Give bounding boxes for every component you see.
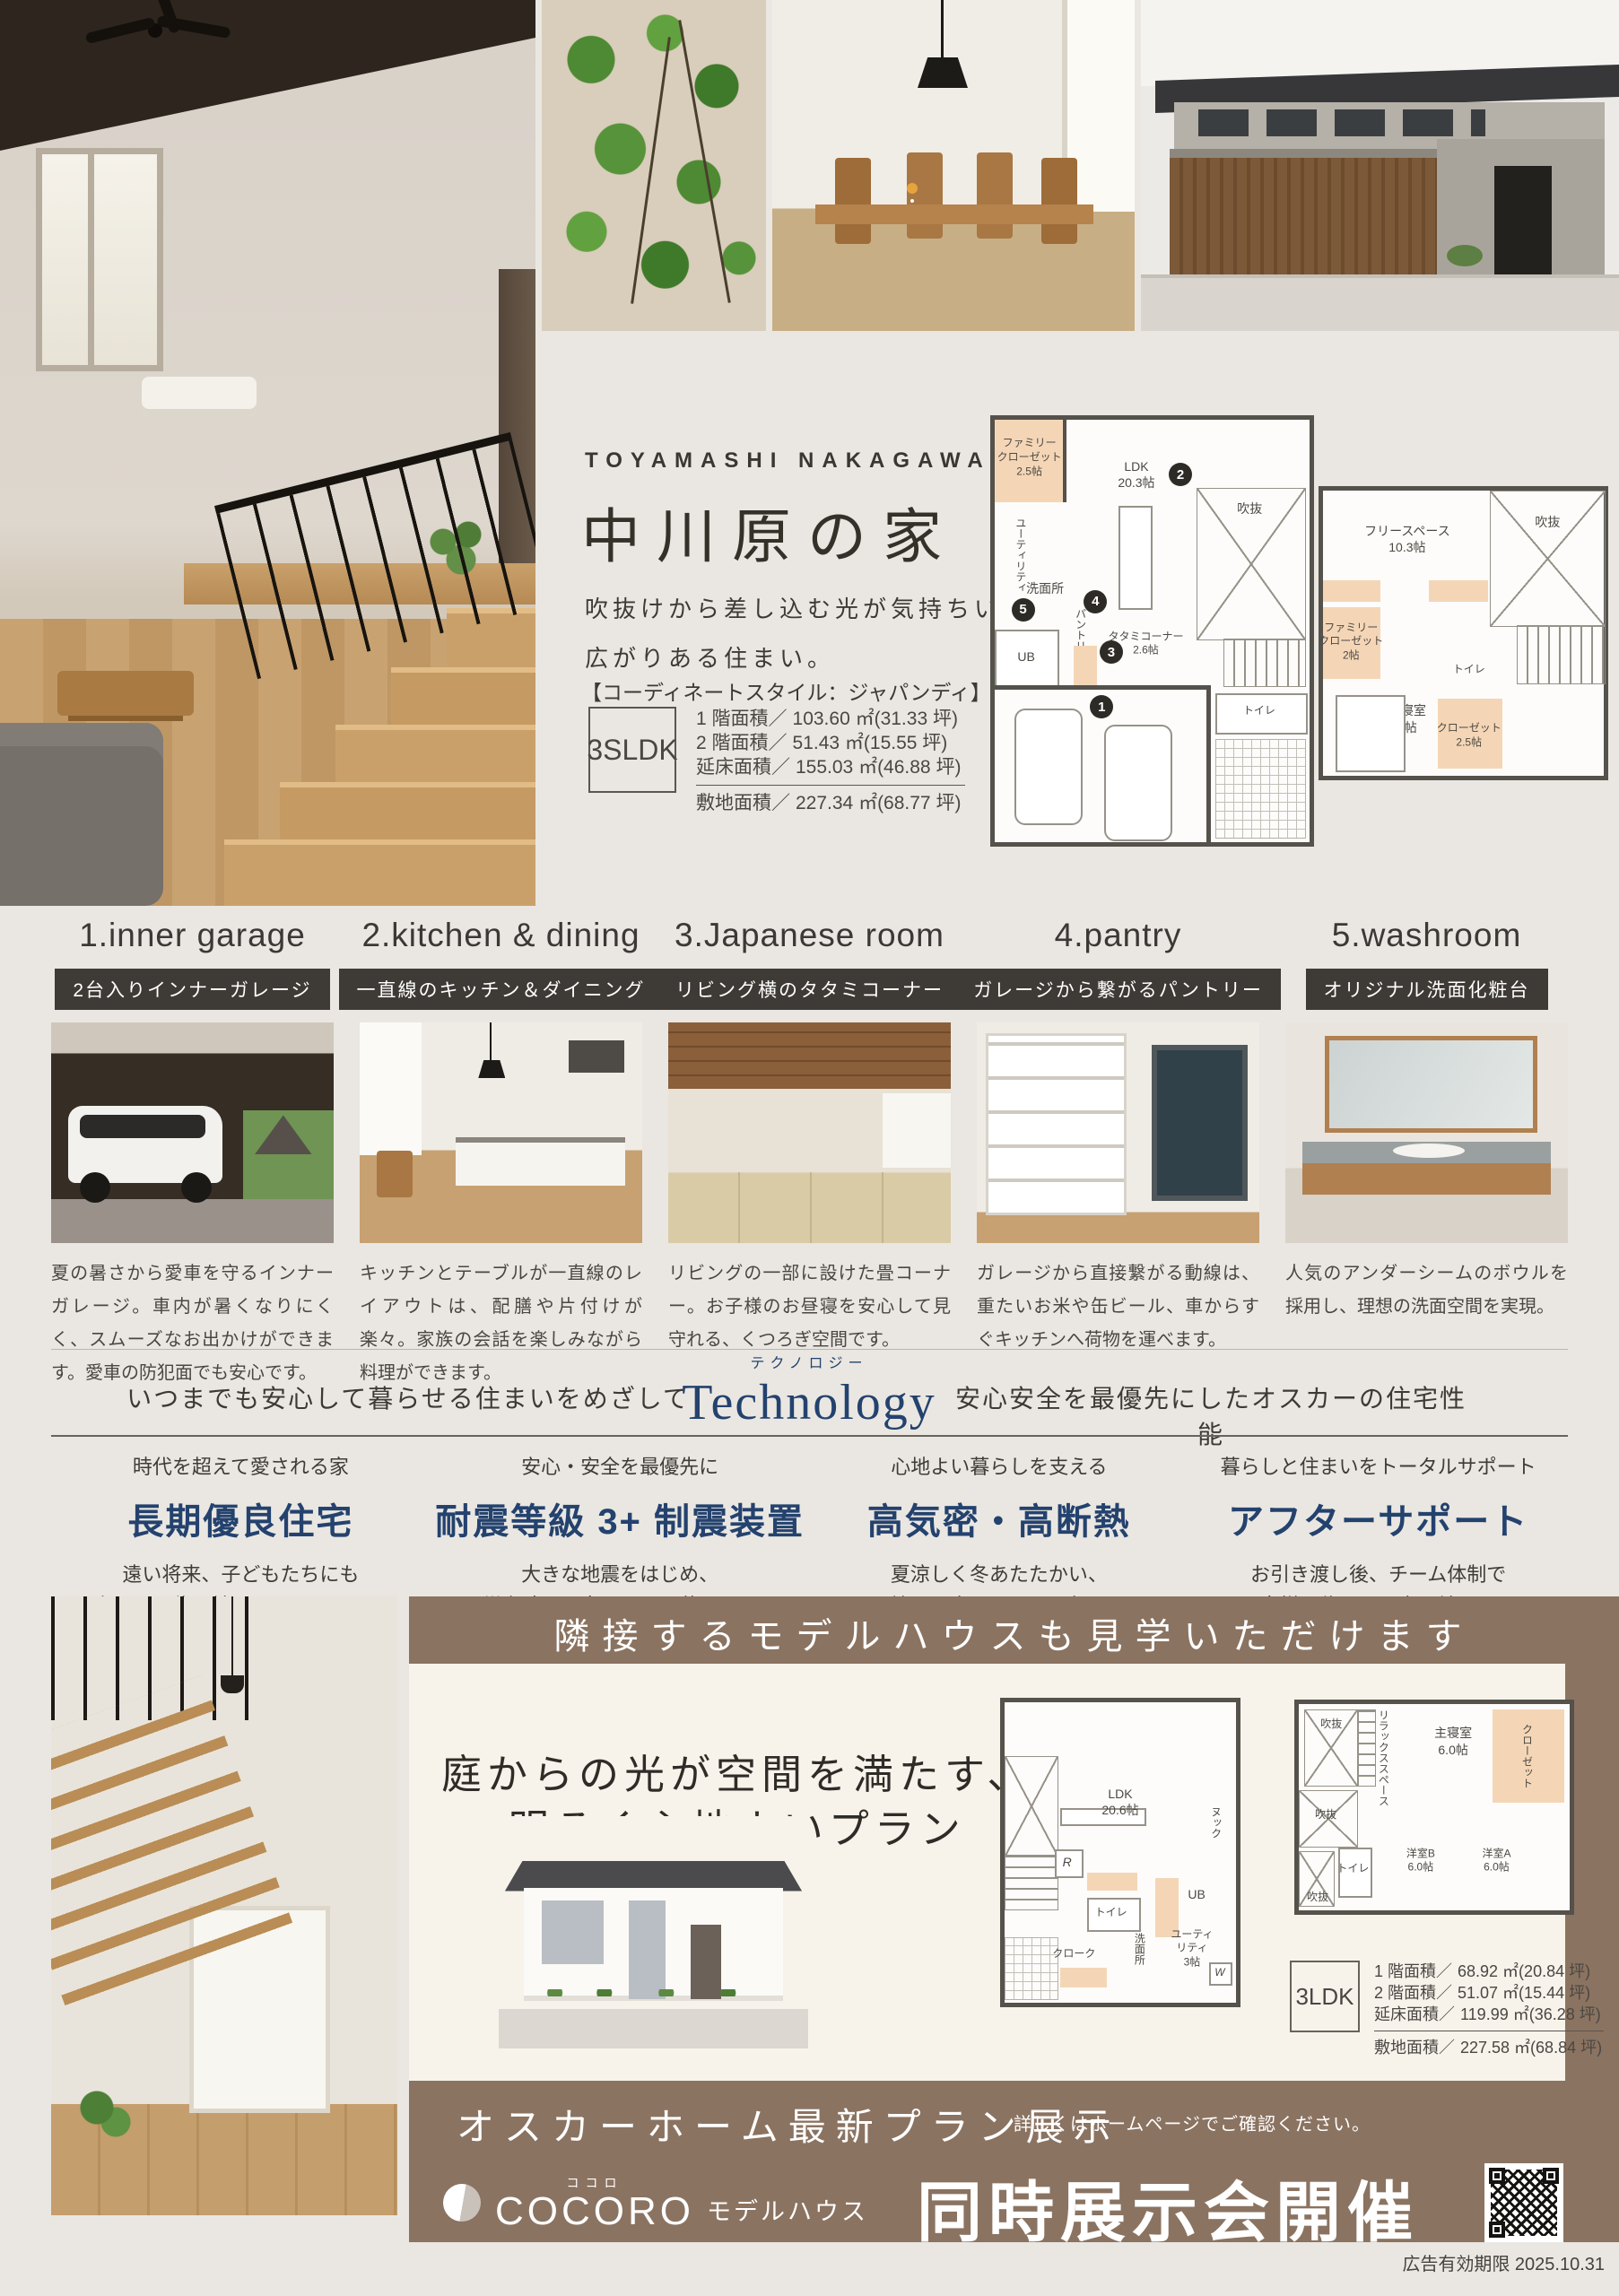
chair [377, 1151, 413, 1197]
render-window [542, 1900, 604, 1965]
feature-column-washroom: 5.washroom オリジナル洗面化粧台 人気のアンダーシームのボウルを採用し… [1285, 917, 1568, 1390]
spec-row: 1 階面積／68.92 ㎡(20.84 坪) [1374, 1961, 1604, 1982]
feature-photo-pantry [977, 1022, 1259, 1243]
tall-window [36, 148, 163, 371]
model-plan-type-badge: 3LDK [1290, 1961, 1360, 2032]
feature-badge: 一直線のキッチン＆ダイニング [339, 969, 664, 1010]
bush [1447, 245, 1483, 266]
ceiling-fan-icon [85, 5, 256, 56]
qr-code [1484, 2163, 1563, 2242]
dining-table [815, 204, 1093, 224]
divider-line-dark [51, 1435, 1568, 1437]
room-label-washroom: 洗面所 [1132, 1933, 1146, 1965]
pendant-cord [490, 1022, 492, 1062]
feature-badge: リビング横のタタミコーナー [657, 969, 962, 1010]
room-label-toilet: トイレ [1336, 1862, 1369, 1876]
leaves [542, 0, 766, 331]
technology-title: Technology [666, 1374, 953, 1431]
feature-number-4: 4 [1084, 590, 1107, 613]
stair-step [280, 782, 535, 839]
feature-photo-kitchen [360, 1022, 642, 1243]
room-label-ub: UB [1017, 648, 1034, 665]
spec-row: 2 階面積／51.07 ㎡(15.44 坪) [1374, 1982, 1604, 2004]
room-label-cloak: クローク [1052, 1948, 1095, 1962]
technology-left-text: いつまでも安心して暮らせる住まいをめざして [126, 1379, 691, 1415]
spec-row: 延床面積／155.03 ㎡(46.88 坪) [696, 755, 965, 779]
room-label-closet: クローゼット [1519, 1724, 1534, 1788]
pendant-shade [918, 57, 968, 88]
kitchen-island [456, 1137, 625, 1186]
feature-number-3: 3 [1100, 640, 1123, 664]
feature-title: 3.Japanese room [675, 917, 944, 954]
window-bar [88, 148, 94, 371]
style-label: 【コーディネートスタイル：ジャパンディ】 [581, 675, 991, 706]
coffee-table [57, 671, 194, 716]
room-label-master-bedroom: 主寝室 6.0帖 [1434, 1725, 1472, 1757]
upper-windows [1198, 109, 1485, 136]
driveway [1141, 274, 1619, 331]
room-label-utility: ユーティリティ 3帖 [1170, 1927, 1214, 1970]
pendant-cord [231, 1596, 233, 1677]
dark-window [1152, 1045, 1248, 1201]
event-title: 同時展示会開催 [917, 2160, 1419, 2255]
pendant-shade [221, 1675, 244, 1693]
room-label-family-closet: ファミリー クローゼット 2.5帖 [997, 437, 1062, 479]
page-title: 中川原の家 [581, 489, 958, 575]
feature-description: ガレージから直接繋がる動線は、重たいお米や缶ビール、車からすぐキッチンへ荷物を運… [977, 1257, 1259, 1357]
footer-note: 詳しくはホームページでご確認ください。 [1014, 2109, 1371, 2135]
mirror [1325, 1036, 1537, 1133]
qr-finder [1543, 2168, 1559, 2184]
room-label-free-space: フリースペース 10.3帖 [1364, 523, 1450, 555]
spec-row: 延床面積／119.99 ㎡(36.28 坪) [1374, 2004, 1604, 2025]
room-label-void: 吹抜 [1237, 500, 1262, 517]
qr-finder [1489, 2168, 1505, 2184]
room-label-void: 吹抜 [1307, 1891, 1328, 1905]
room-label-toilet: トイレ [1095, 1906, 1127, 1920]
stair-step [224, 839, 535, 906]
room-label-void: 吹抜 [1535, 514, 1560, 530]
chair [977, 152, 1013, 239]
render-driveway [499, 2009, 808, 2048]
entry-door [1494, 166, 1552, 275]
window [883, 1093, 951, 1169]
vanity-cabinet [1302, 1163, 1551, 1194]
room-label-r: R [1063, 1853, 1072, 1869]
brand-row: ココロ COCORO モデルハウス [443, 2174, 868, 2231]
room-label-family-closet: ファミリー クローゼット 2帖 [1319, 621, 1383, 663]
garage-door [1170, 149, 1437, 283]
feature-title: 2.kitchen & dining [361, 917, 640, 954]
chair [907, 152, 943, 239]
chair [1041, 158, 1077, 244]
model-spec-box: 3LDK 1 階面積／68.92 ㎡(20.84 坪) 2 階面積／51.07 … [1290, 1961, 1604, 2058]
feature-title: 1.inner garage [79, 917, 306, 954]
technology-right-text: 安心安全を最優先にしたオスカーの住宅性能 [951, 1379, 1471, 1451]
render-door [691, 1925, 722, 1999]
model-plan-2f: 吹抜 リラックススペース 主寝室 6.0帖 クローゼット 吹抜 トイレ 洋室B … [1294, 1700, 1574, 1915]
qr-finder [1489, 2222, 1505, 2238]
technology-ruby: テクノロジー [666, 1351, 953, 1372]
brand-suffix: モデルハウス [707, 2179, 868, 2227]
feature-description: 夏の暑さから愛車を守るインナーガレージ。車内が暑くなりにくく、スムーズなお出かけ… [51, 1257, 334, 1390]
wheel [181, 1172, 212, 1203]
floor-plan-2f: 吹抜 フリースペース 10.3帖 ファミリー クローゼット 2帖 主寝室 8帖 … [1319, 486, 1608, 780]
feature-column-kitchen: 2.kitchen & dining 一直線のキッチン＆ダイニング キッチンとテ… [360, 917, 642, 1390]
feature-description: キッチンとテーブルが一直線のレイアウトは、配膳や片付けが楽々。家族の会話を楽しみ… [360, 1257, 642, 1390]
wheel [80, 1172, 110, 1203]
feature-column-japanese-room: 3.Japanese room リビング横のタタミコーナー リビングの一部に設け… [668, 917, 951, 1390]
photo-living-room [0, 0, 535, 906]
room-label-ldk: LDK 20.6帖 [1101, 1785, 1138, 1817]
chair [835, 158, 871, 244]
feature-number-2: 2 [1169, 463, 1192, 486]
pantry-shelves [988, 1036, 1124, 1213]
flyer-page: TOYAMASHI NAKAGAWARA 中川原の家 吹抜けから差し込む光が気持… [0, 0, 1619, 2296]
cocoro-logo-icon [443, 2184, 481, 2222]
render-roof [505, 1861, 802, 1892]
feature-badge: ガレージから繋がるパントリー [955, 969, 1281, 1010]
room-label-room-a: 洋室A 6.0帖 [1482, 1847, 1510, 1874]
feature-column-pantry: 4.pantry ガレージから繋がるパントリー ガレージから直接繋がる動線は、重… [977, 917, 1259, 1390]
plan-type-badge: 3SLDK [588, 707, 676, 793]
feature-number-5: 5 [1012, 598, 1035, 622]
location-en: TOYAMASHI NAKAGAWARA [585, 448, 1038, 474]
spec-row: 敷地面積／227.34 ㎡(68.77 坪) [696, 791, 965, 815]
room-label-utility: ユーティリティ [1013, 517, 1027, 593]
photo-greenery [542, 0, 766, 331]
feature-photo-tatami [668, 1022, 951, 1243]
photo-dining [772, 0, 1135, 331]
car-outline [1104, 725, 1172, 841]
pendant-shade [478, 1060, 505, 1078]
stair-step [391, 667, 535, 725]
plant [72, 2079, 135, 2151]
feature-description: リビングの一部に設けた畳コーナー。お子様のお昼寝を安心して見守れる、くつろぎ空間… [668, 1257, 951, 1357]
feature-photo-garage [51, 1022, 334, 1243]
model-house-banner: 隣接するモデルハウスも見学いただけます [409, 1607, 1619, 1659]
car-outline [1014, 709, 1083, 825]
room-label-nook: ヌック [1208, 1806, 1223, 1839]
flower [907, 183, 918, 194]
feature-photo-washroom [1285, 1022, 1568, 1243]
room-label-void: 吹抜 [1315, 1808, 1336, 1822]
spec-row: 1 階面積／103.60 ㎡(31.33 坪) [696, 707, 965, 731]
room-label-ldk: LDK 20.3帖 [1118, 458, 1154, 491]
spec-row: 2 階面積／51.43 ㎡(15.55 坪) [696, 731, 965, 755]
main-spec-box: 3SLDK 1 階面積／103.60 ㎡(31.33 坪) 2 階面積／51.4… [588, 707, 965, 815]
room-label-void: 吹抜 [1320, 1718, 1342, 1732]
render-bushes [530, 1989, 778, 1996]
room-label-toilet: トイレ [1243, 704, 1275, 718]
feature-badge: オリジナル洗面化粧台 [1306, 969, 1548, 1010]
room-label-w: W [1214, 1966, 1224, 1980]
room-label-closet: クローゼット 2.5帖 [1437, 722, 1501, 750]
floor-plan-1f: ファミリー クローゼット 2.5帖 LDK 20.3帖 2 吹抜 ユーティリティ… [990, 415, 1314, 847]
divider-line [51, 1349, 1568, 1350]
room-label-room-b: 洋室B 6.0帖 [1406, 1847, 1435, 1874]
render-window [629, 1900, 666, 1999]
window [360, 1022, 422, 1155]
feature-title: 5.washroom [1332, 917, 1522, 954]
room-label-ub: UB [1188, 1886, 1205, 1902]
model-plan-1f: LDK 20.6帖 ヌック R UB トイレ クローク 洗面所 ユーティリティ … [1000, 1698, 1240, 2007]
feature-description: 人気のアンダーシームのボウルを採用し、理想の洗面空間を実現。 [1285, 1257, 1568, 1324]
tatami-floor [668, 1172, 951, 1243]
stair-step [335, 725, 535, 782]
divider [696, 785, 965, 786]
photo-hallway [51, 1596, 397, 2215]
feature-badge: 2台入りインナーガレージ [55, 969, 329, 1010]
sofa [0, 723, 163, 906]
brand-name: COCORO [495, 2192, 694, 2231]
aircon-unit [142, 377, 257, 416]
feature-column-garage: 1.inner garage 2台入りインナーガレージ 夏の暑さから愛車を守るイ… [51, 917, 334, 1390]
wood-ceiling [668, 1022, 951, 1089]
divider [1374, 2031, 1604, 2031]
feature-title: 4.pantry [1055, 917, 1182, 954]
room-label-washroom: 洗面所 [1026, 580, 1064, 596]
range-hood [569, 1040, 624, 1073]
feature-section: 1.inner garage 2台入りインナーガレージ 夏の暑さから愛車を守るイ… [51, 917, 1568, 1390]
photo-exterior [1141, 0, 1619, 331]
model-house-render [499, 1816, 808, 2063]
room-label-relax: リラックススペース [1376, 1709, 1390, 1806]
room-label-toilet: トイレ [1453, 664, 1485, 678]
feature-number-1: 1 [1090, 695, 1113, 718]
car-windows [80, 1115, 205, 1138]
pendant-lamp-icon [941, 0, 944, 59]
tagline: 吹抜けから差し込む光が気持ちいい、 広がりある住まい。 [585, 585, 1058, 683]
spec-row: 敷地面積／227.58 ㎡(68.84 坪) [1374, 2037, 1604, 2058]
ad-validity: 広告有効期限 2025.10.31 [1402, 2249, 1605, 2275]
technology-heading: テクノロジー Technology [666, 1351, 953, 1431]
brand-name-block: ココロ COCORO [495, 2174, 694, 2231]
